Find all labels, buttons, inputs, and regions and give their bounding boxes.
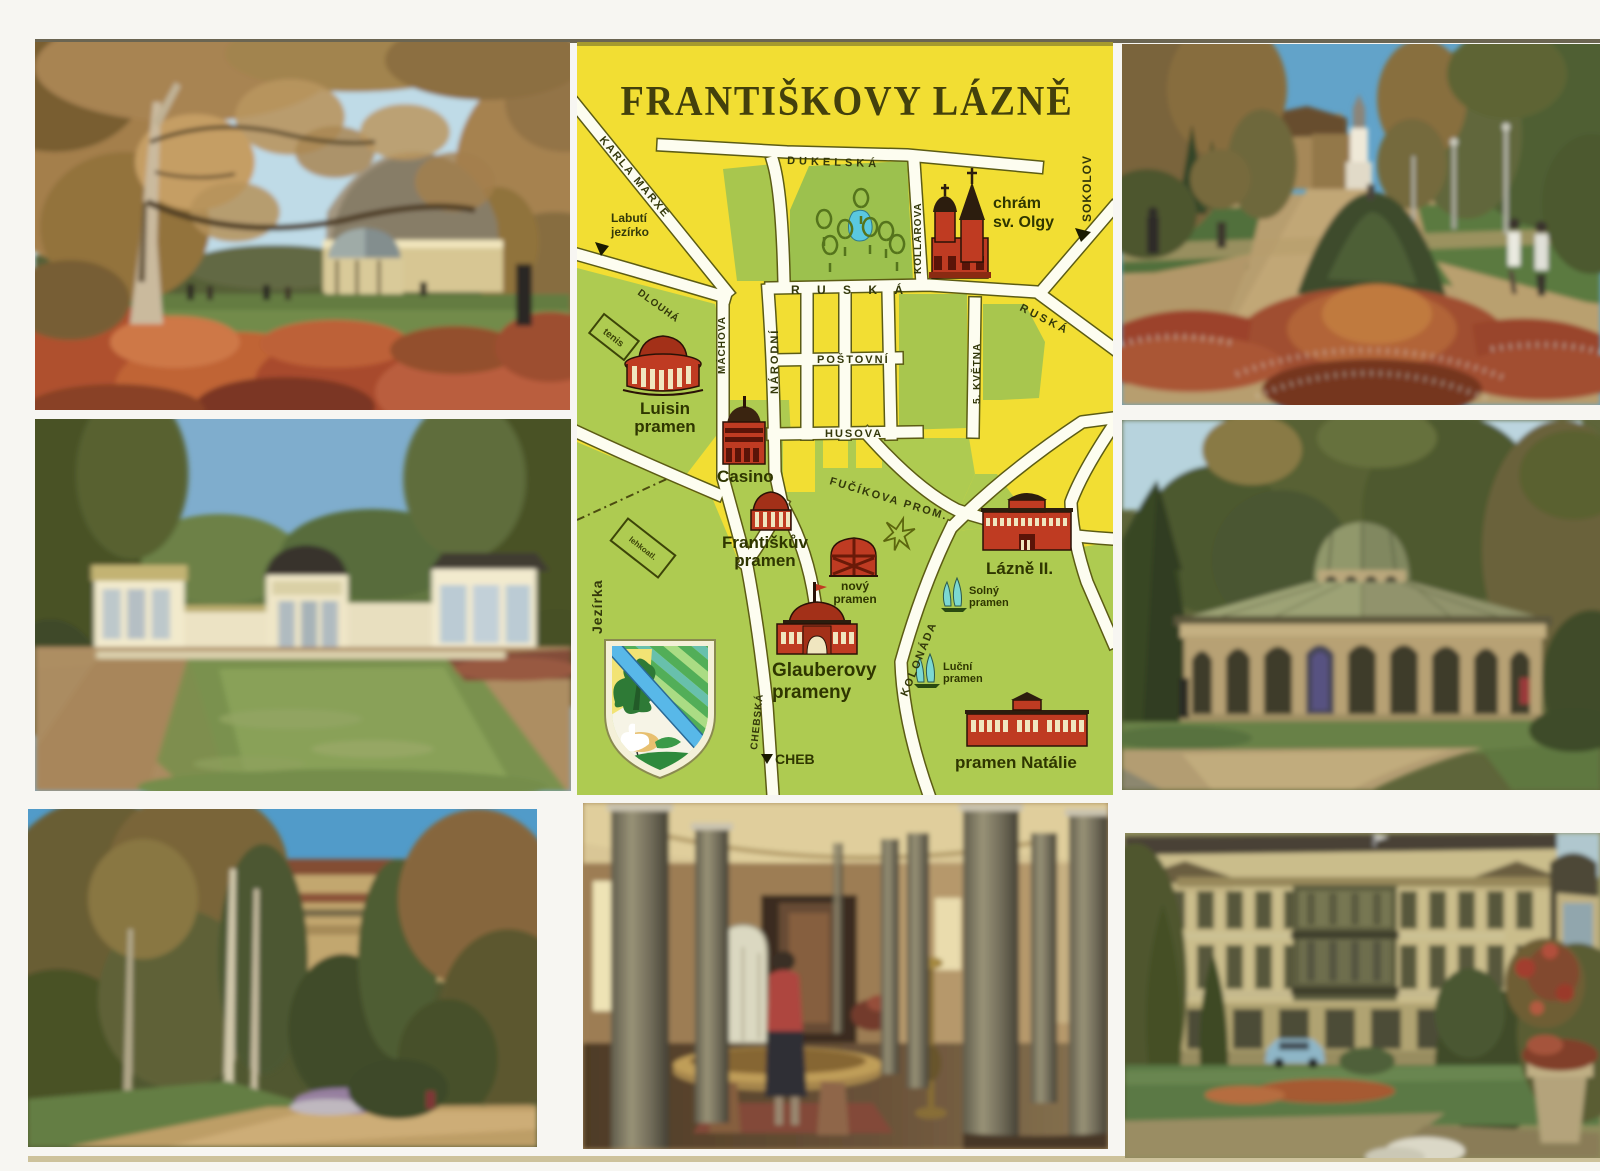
svg-text:R U S K Á: R U S K Á [791, 282, 910, 297]
svg-text:POŠTOVNÍ: POŠTOVNÍ [817, 353, 890, 366]
svg-text:CHEB: CHEB [775, 751, 815, 767]
svg-text:nový: nový [841, 579, 869, 593]
svg-text:Solný: Solný [969, 585, 1000, 597]
svg-text:prameny: prameny [772, 682, 852, 703]
svg-text:jezírko: jezírko [610, 225, 649, 239]
svg-text:pramen: pramen [943, 673, 983, 685]
svg-text:HUSOVA: HUSOVA [825, 428, 883, 440]
svg-text:pramen: pramen [969, 597, 1009, 609]
svg-text:FRANTIŠKOVY LÁZNĚ: FRANTIŠKOVY LÁZNĚ [620, 77, 1073, 124]
svg-text:Jezírka: Jezírka [589, 580, 605, 634]
svg-text:NÁRODNÍ: NÁRODNÍ [768, 329, 781, 394]
svg-text:pramen: pramen [634, 417, 695, 436]
svg-text:SOKOLOV: SOKOLOV [1080, 155, 1094, 222]
svg-text:Luisin: Luisin [640, 399, 690, 418]
svg-text:Glauberovy: Glauberovy [772, 660, 877, 681]
svg-text:pramen: pramen [734, 551, 795, 570]
svg-text:Františkův: Františkův [722, 533, 809, 552]
svg-text:Casino: Casino [717, 467, 774, 486]
svg-text:pramen Natálie: pramen Natálie [955, 753, 1077, 772]
svg-text:KOLLÁROVA: KOLLÁROVA [911, 202, 924, 274]
svg-text:Labutí: Labutí [611, 211, 648, 225]
svg-text:chrám: chrám [993, 195, 1041, 212]
svg-text:Lázně II.: Lázně II. [986, 559, 1053, 578]
svg-text:Luční: Luční [943, 661, 973, 673]
svg-text:pramen: pramen [833, 592, 876, 606]
svg-text:MÁCHOVA: MÁCHOVA [715, 316, 728, 374]
svg-text:sv. Olgy: sv. Olgy [993, 214, 1054, 231]
svg-text:5. KVĚTNA: 5. KVĚTNA [970, 343, 983, 404]
